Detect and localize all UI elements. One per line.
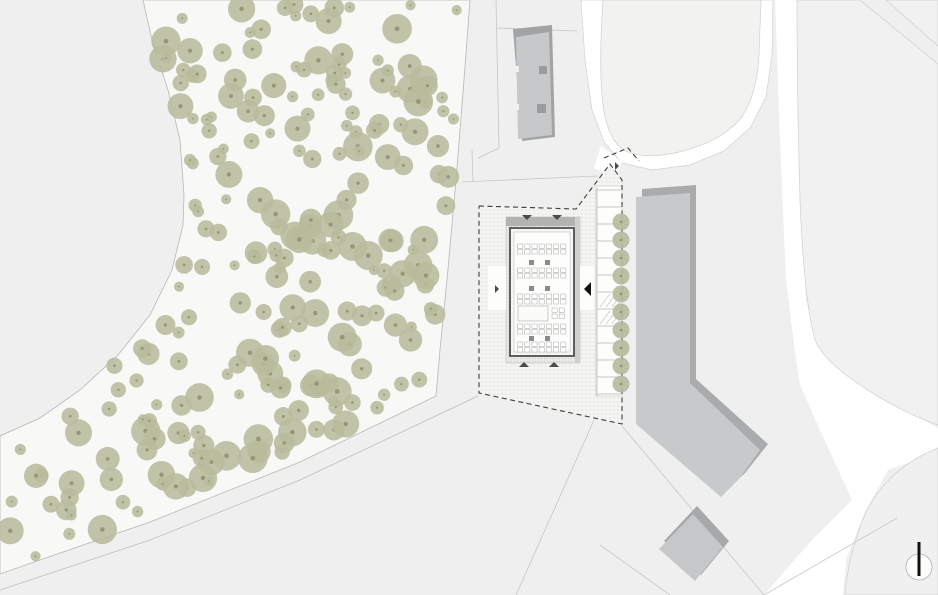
desk-icon (552, 308, 557, 312)
tree-center-dot (262, 311, 265, 314)
tree-center-dot (292, 3, 295, 6)
tree-center-dot (394, 323, 398, 327)
tree-center-dot (620, 275, 623, 278)
desk-icon (554, 268, 559, 272)
tree-center-dot (424, 273, 428, 277)
tree-center-dot (282, 415, 285, 418)
tree-center-dot (253, 255, 255, 257)
tree-center-dot (620, 383, 623, 386)
tree-center-dot (373, 269, 375, 271)
tree-center-dot (174, 484, 178, 488)
tree-center-dot (335, 406, 337, 408)
desk-icon (532, 294, 537, 298)
desk-icon (539, 300, 544, 304)
tree-center-dot (208, 130, 210, 132)
tree-center-dot (65, 508, 68, 511)
tree-center-dot (208, 480, 210, 482)
desk-icon (532, 274, 537, 278)
desk-icon (539, 342, 544, 346)
tree-center-dot (197, 210, 199, 212)
desk-icon (539, 250, 544, 254)
tree-center-dot (192, 118, 194, 120)
tree-center-dot (8, 529, 12, 533)
tree-center-dot (68, 496, 71, 499)
desk-icon (525, 268, 530, 272)
tree-center-dot (178, 104, 182, 108)
tree-center-dot (11, 501, 13, 503)
tree-center-dot (162, 483, 164, 485)
tree-center-dot (422, 238, 426, 242)
desk-icon (518, 268, 523, 272)
building-north-notch-1 (539, 66, 547, 74)
tree-center-dot (416, 99, 421, 104)
tree-center-dot (620, 221, 623, 224)
tree-center-dot (303, 68, 305, 70)
tree-center-dot (178, 332, 180, 334)
column-icon (529, 336, 534, 341)
tree-center-dot (234, 264, 236, 266)
desk-icon (546, 274, 551, 278)
tree-center-dot (272, 84, 276, 88)
tree-center-dot (206, 119, 208, 121)
tree-center-dot (275, 254, 277, 256)
tree-center-dot (188, 316, 191, 319)
desk-icon (554, 324, 559, 328)
tree-center-dot (256, 437, 261, 442)
tree-center-dot (349, 6, 351, 8)
tree-center-dot (239, 7, 243, 11)
tree-center-dot (50, 503, 53, 506)
building-north-cut-2 (514, 104, 519, 110)
tree-center-dot (340, 335, 345, 340)
tree-center-dot (34, 474, 38, 478)
tree-center-dot (344, 93, 346, 95)
tree-center-dot (148, 420, 150, 422)
tree-center-dot (337, 236, 340, 239)
desk-icon (561, 274, 566, 278)
desk-icon (554, 294, 559, 298)
tree-center-dot (283, 256, 286, 259)
tree-center-dot (338, 63, 340, 65)
tree-center-dot (366, 253, 371, 258)
desk-icon (525, 244, 530, 248)
tree-center-dot (329, 249, 332, 252)
tree-center-dot (188, 49, 192, 53)
column-icon (529, 286, 534, 291)
tree-center-dot (164, 39, 169, 44)
tree-center-dot (343, 422, 347, 426)
tree-center-dot (113, 364, 116, 367)
desk-icon (532, 324, 537, 328)
tree-center-dot (400, 123, 402, 125)
desk-icon (525, 348, 530, 352)
tree-center-dot (426, 84, 429, 87)
desk-icon (539, 348, 544, 352)
desk-icon (518, 244, 523, 248)
tree-center-dot (239, 301, 242, 304)
desk-icon (561, 324, 566, 328)
desk-icon (561, 330, 566, 334)
tree-center-dot (225, 198, 227, 200)
column-icon (529, 260, 534, 265)
desk-icon (546, 250, 551, 254)
tree-center-dot (360, 367, 363, 370)
tree-center-dot (205, 227, 208, 230)
tree-center-dot (447, 175, 450, 178)
building-north-notch-2 (537, 104, 546, 113)
desk-icon (525, 300, 530, 304)
desk-icon (525, 274, 530, 278)
desk-icon (561, 300, 566, 304)
tree-center-dot (192, 452, 194, 454)
desk-icon (532, 348, 537, 352)
tree-center-dot (19, 449, 21, 451)
desk-icon (532, 250, 537, 254)
tree-center-dot (141, 347, 144, 350)
building-north-cut-1 (514, 66, 519, 72)
tree-center-dot (358, 150, 360, 152)
desk-icon (518, 294, 523, 298)
tree-center-dot (351, 401, 354, 404)
desk-icon (532, 330, 537, 334)
tree-center-dot (334, 83, 337, 86)
tree-center-dot (620, 239, 623, 242)
column-icon (545, 286, 550, 291)
tree-center-dot (309, 12, 312, 15)
desk-icon (552, 314, 557, 318)
tree-center-dot (273, 212, 278, 217)
tree-center-dot (297, 237, 301, 241)
tree-center-dot (383, 270, 385, 272)
tree-center-dot (620, 311, 623, 314)
tree-center-dot (283, 441, 286, 444)
tree-center-dot (216, 155, 219, 158)
tree-center-dot (346, 125, 348, 127)
tree-center-dot (249, 32, 251, 34)
tree-center-dot (383, 394, 385, 396)
tree-center-dot (335, 389, 340, 394)
desk-icon (559, 314, 564, 318)
desk-icon (561, 268, 566, 272)
tree-center-dot (327, 19, 331, 23)
tree-center-dot (345, 198, 348, 201)
building-north (516, 32, 552, 139)
tree-center-dot (263, 357, 267, 361)
desk-icon (561, 250, 566, 254)
desk-icon (539, 294, 544, 298)
tree-center-dot (70, 481, 74, 485)
desk-icon (561, 348, 566, 352)
tree-center-dot (182, 69, 184, 71)
desk-icon (525, 342, 530, 346)
site-plan (0, 0, 938, 595)
tree-center-dot (197, 431, 199, 433)
tree-center-dot (395, 26, 400, 31)
tree-center-dot (418, 378, 421, 381)
tree-center-dot (159, 473, 163, 477)
desk-icon (518, 300, 523, 304)
desk-icon (532, 300, 537, 304)
tree-center-dot (620, 365, 623, 368)
desk-icon (525, 294, 530, 298)
tree-center-dot (165, 57, 167, 59)
tree-center-dot (294, 355, 296, 357)
tree-center-dot (250, 456, 255, 461)
tree-center-dot (156, 404, 158, 406)
tree-center-dot (177, 360, 180, 363)
tree-center-dot (313, 311, 317, 315)
desk-icon (554, 348, 559, 352)
desk-icon (554, 342, 559, 346)
tree-center-dot (317, 94, 319, 96)
desk-icon (554, 244, 559, 248)
tree-center-dot (341, 52, 345, 56)
tree-center-dot (68, 533, 70, 535)
tree-center-dot (311, 158, 314, 161)
tree-center-dot (248, 351, 252, 355)
tree-center-dot (291, 305, 295, 309)
tree-center-dot (181, 17, 183, 19)
desk-icon (539, 274, 544, 278)
main-building-roof-shade-right (575, 217, 580, 363)
tree-center-dot (620, 347, 623, 350)
tree-center-dot (201, 266, 204, 269)
desk-icon (525, 250, 530, 254)
tree-center-dot (380, 78, 384, 82)
column-icon (545, 260, 550, 265)
tree-center-dot (292, 96, 294, 98)
tree-center-dot (178, 286, 180, 288)
tree-center-dot (295, 66, 297, 68)
desk-icon (532, 244, 537, 248)
tree-center-dot (351, 112, 353, 114)
tree-center-dot (377, 59, 379, 61)
tree-center-dot (344, 72, 346, 74)
desk-icon (539, 324, 544, 328)
tree-center-dot (180, 404, 183, 407)
tree-center-dot (135, 379, 137, 381)
north-arrow-needle (918, 542, 921, 576)
desk-icon (525, 324, 530, 328)
tree-center-dot (106, 457, 110, 461)
tree-center-dot (238, 394, 240, 396)
tree-center-dot (309, 218, 313, 222)
tree-center-dot (200, 457, 203, 460)
tree-center-dot (229, 94, 233, 98)
tree-center-dot (456, 9, 458, 11)
tree-center-dot (251, 48, 254, 51)
tree-center-dot (409, 338, 413, 342)
tree-center-dot (258, 198, 262, 202)
tree-center-dot (441, 97, 443, 99)
tree-center-dot (620, 329, 623, 332)
tree-center-dot (184, 435, 186, 437)
tree-center-dot (350, 244, 355, 249)
tree-center-dot (373, 129, 376, 132)
tree-center-dot (328, 223, 332, 227)
tree-center-dot (100, 527, 105, 532)
desk-icon (546, 342, 551, 346)
desk-icon (561, 342, 566, 346)
tree-center-dot (275, 275, 279, 279)
tree-center-dot (442, 110, 444, 112)
tree-center-dot (444, 204, 447, 207)
desk-icon (554, 274, 559, 278)
tree-center-dot (620, 293, 623, 296)
tree-center-dot (400, 383, 402, 385)
desk-icon (518, 330, 523, 334)
desk-icon (518, 250, 523, 254)
tree-center-dot (298, 150, 300, 152)
desk-icon (532, 268, 537, 272)
tree-center-dot (183, 264, 186, 267)
tree-center-dot (402, 164, 405, 167)
tree-center-dot (413, 130, 417, 134)
tree-center-dot (223, 148, 225, 150)
tree-center-dot (290, 430, 295, 435)
desk-icon (546, 300, 551, 304)
tree-center-dot (356, 181, 359, 184)
desk-icon (518, 324, 523, 328)
tree-center-dot (260, 28, 263, 31)
tree-center-dot (69, 415, 72, 418)
tree-center-dot (360, 314, 363, 317)
tree-center-dot (298, 322, 301, 325)
tree-center-dot (263, 114, 266, 117)
tree-center-dot (387, 70, 389, 72)
tree-center-dot (137, 511, 139, 513)
tree-center-dot (307, 113, 309, 115)
tree-center-dot (202, 444, 205, 447)
tree-center-dot (117, 389, 119, 391)
stair-void (518, 306, 548, 321)
tree-center-dot (408, 64, 412, 68)
desk-icon (546, 244, 551, 248)
tree-center-dot (109, 478, 113, 482)
desk-icon (539, 268, 544, 272)
site-plan-canvas (0, 0, 938, 595)
desk-icon (559, 308, 564, 312)
tree-center-dot (376, 407, 378, 409)
tree-center-dot (620, 257, 623, 260)
tree-center-dot (224, 453, 229, 458)
tree-center-dot (236, 363, 239, 366)
tree-center-dot (197, 395, 202, 400)
tree-center-dot (388, 238, 392, 242)
desk-icon (539, 330, 544, 334)
tree-center-dot (217, 231, 220, 234)
desk-icon (546, 330, 551, 334)
tree-center-dot (430, 308, 432, 310)
tree-center-dot (179, 82, 182, 85)
tree-center-dot (71, 515, 73, 517)
tree-center-dot (338, 153, 340, 155)
column-icon (545, 336, 550, 341)
tree-center-dot (227, 172, 231, 176)
tree-center-dot (233, 78, 237, 82)
tree-center-dot (196, 72, 199, 75)
tree-center-dot (400, 271, 404, 275)
tree-center-dot (267, 384, 270, 387)
desk-icon (518, 342, 523, 346)
tree-center-dot (281, 326, 284, 329)
tree-center-dot (410, 4, 412, 6)
tree-center-dot (297, 409, 300, 412)
tree-center-dot (76, 431, 80, 435)
tree-center-dot (221, 51, 224, 54)
tree-center-dot (308, 280, 311, 283)
tree-center-dot (153, 437, 157, 441)
tree-center-dot (412, 249, 414, 251)
tree-center-dot (279, 386, 282, 389)
tree-center-dot (252, 96, 255, 99)
tree-center-dot (250, 140, 253, 143)
tree-center-dot (189, 159, 191, 161)
tree-center-dot (315, 428, 318, 431)
tree-center-dot (386, 155, 390, 159)
tree-center-dot (226, 373, 228, 375)
desk-icon (561, 244, 566, 248)
desk-icon (554, 330, 559, 334)
tree-center-dot (284, 7, 287, 10)
tree-center-dot (316, 58, 321, 63)
tree-center-dot (122, 501, 124, 503)
tree-center-dot (393, 289, 396, 292)
desk-icon (546, 348, 551, 352)
tree-center-dot (295, 127, 299, 131)
desk-icon (561, 294, 566, 298)
desk-icon (539, 244, 544, 248)
tree-center-dot (314, 381, 319, 386)
desk-icon (554, 300, 559, 304)
tree-center-dot (436, 144, 440, 148)
tree-center-dot (333, 72, 336, 75)
desk-icon (525, 330, 530, 334)
desk-icon (518, 274, 523, 278)
tree-center-dot (411, 326, 413, 328)
tree-center-dot (269, 132, 271, 134)
tree-center-dot (142, 418, 144, 420)
tree-center-dot (145, 448, 148, 451)
desk-icon (532, 342, 537, 346)
tree-center-dot (394, 91, 396, 93)
tree-center-dot (375, 312, 378, 315)
desk-icon (546, 324, 551, 328)
desk-icon (546, 268, 551, 272)
desk-icon (518, 348, 523, 352)
tree-center-dot (346, 310, 349, 313)
tree-center-dot (164, 323, 167, 326)
desk-icon (554, 250, 559, 254)
tree-center-dot (246, 109, 250, 113)
tree-center-dot (453, 118, 455, 120)
main-building-roof-shade-top (506, 217, 580, 226)
tree-center-dot (35, 555, 37, 557)
desk-icon (546, 294, 551, 298)
tree-center-dot (295, 15, 297, 17)
tree-center-dot (108, 408, 110, 410)
